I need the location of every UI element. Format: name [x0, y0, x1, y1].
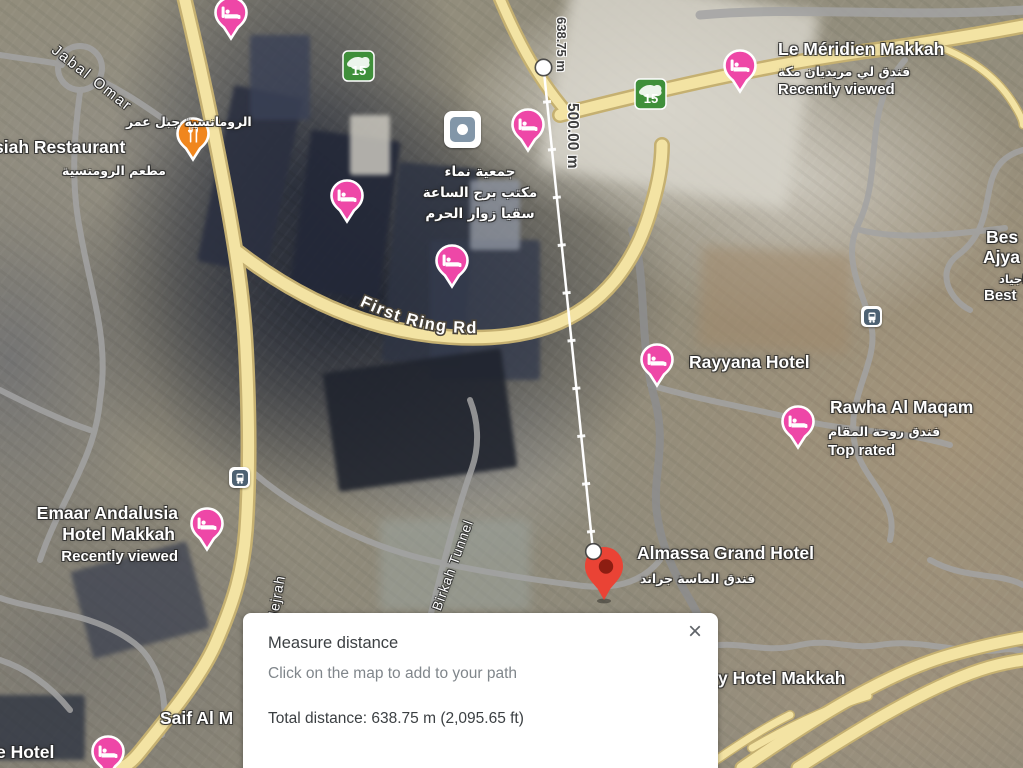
map-canvas[interactable]: First Ring Rd Jabal Omar Hejrah Al Birka…: [0, 0, 1023, 768]
poi-label-almassa: Almassa Grand Hotel: [637, 543, 814, 564]
measure-endpoint-handle[interactable]: [583, 541, 604, 562]
measure-panel-title: Measure distance: [268, 634, 694, 653]
measure-distance-panel: × Measure distance Click on the map to a…: [243, 613, 718, 768]
measure-total-distance-label: 638.75 m: [554, 17, 569, 72]
measure-panel-hint: Click on the map to add to your path: [268, 665, 694, 683]
measure-interval-label: 500.00 m: [563, 103, 581, 169]
measure-panel-total-distance: Total distance: 638.75 m (2,095.65 ft): [268, 710, 694, 728]
close-icon[interactable]: ×: [682, 619, 708, 645]
measure-endpoint-handle[interactable]: [533, 57, 554, 78]
poi-label-almassa-arabic: فندق الماسة جراند: [640, 568, 755, 589]
